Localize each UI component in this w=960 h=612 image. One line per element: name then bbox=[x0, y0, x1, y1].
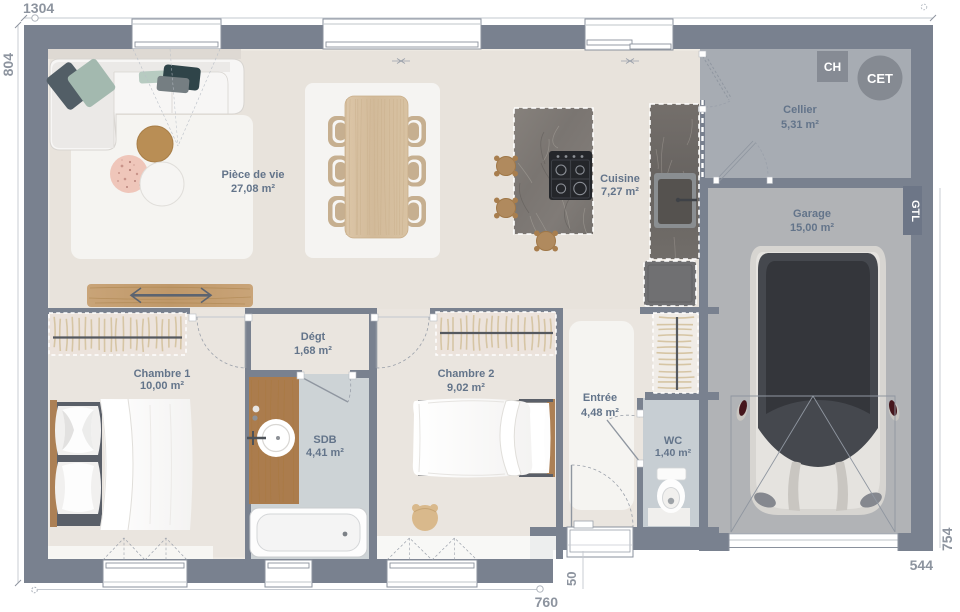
svg-text:WC: WC bbox=[664, 435, 682, 447]
svg-text:544: 544 bbox=[910, 557, 934, 573]
svg-text:CET: CET bbox=[867, 71, 893, 86]
svg-text:CH: CH bbox=[824, 60, 841, 74]
svg-text:1,40 m²: 1,40 m² bbox=[655, 447, 692, 459]
svg-text:27,08 m²: 27,08 m² bbox=[231, 183, 275, 195]
svg-text:754: 754 bbox=[939, 527, 955, 551]
svg-text:9,02 m²: 9,02 m² bbox=[447, 382, 485, 394]
svg-text:15,00 m²: 15,00 m² bbox=[790, 222, 834, 234]
svg-text:Entrée: Entrée bbox=[583, 392, 617, 404]
svg-text:50: 50 bbox=[564, 572, 579, 586]
svg-text:Garage: Garage bbox=[793, 208, 831, 220]
svg-text:7,27 m²: 7,27 m² bbox=[601, 186, 639, 198]
svg-text:SDB: SDB bbox=[313, 434, 336, 446]
svg-text:Chambre 1: Chambre 1 bbox=[134, 368, 191, 380]
svg-text:Dégt: Dégt bbox=[301, 331, 326, 343]
svg-text:4,41 m²: 4,41 m² bbox=[306, 447, 344, 459]
svg-text:1304: 1304 bbox=[23, 0, 54, 16]
svg-text:10,00 m²: 10,00 m² bbox=[140, 380, 184, 392]
svg-text:760: 760 bbox=[535, 594, 559, 610]
svg-text:Pièce de vie: Pièce de vie bbox=[222, 169, 285, 181]
svg-text:1,68 m²: 1,68 m² bbox=[294, 345, 332, 357]
svg-text:Chambre 2: Chambre 2 bbox=[438, 368, 495, 380]
svg-text:Cuisine: Cuisine bbox=[600, 173, 640, 185]
svg-text:GTL: GTL bbox=[909, 200, 921, 222]
svg-text:5,31 m²: 5,31 m² bbox=[781, 119, 819, 131]
svg-text:Cellier: Cellier bbox=[783, 104, 817, 116]
svg-text:804: 804 bbox=[0, 53, 16, 77]
svg-text:4,48 m²: 4,48 m² bbox=[581, 407, 619, 419]
